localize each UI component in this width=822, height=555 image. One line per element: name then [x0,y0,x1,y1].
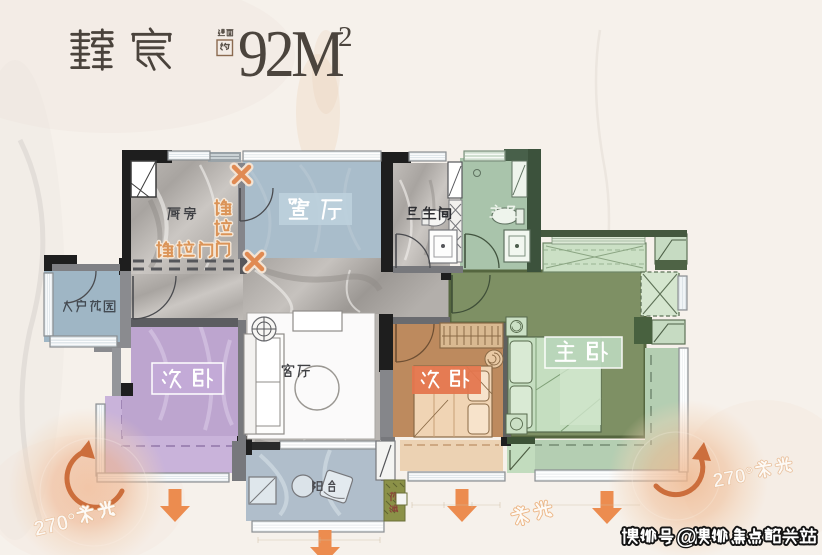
svg-text:2: 2 [338,21,353,53]
svg-text:92M: 92M [238,16,343,91]
svg-text:@: @ [676,526,696,549]
